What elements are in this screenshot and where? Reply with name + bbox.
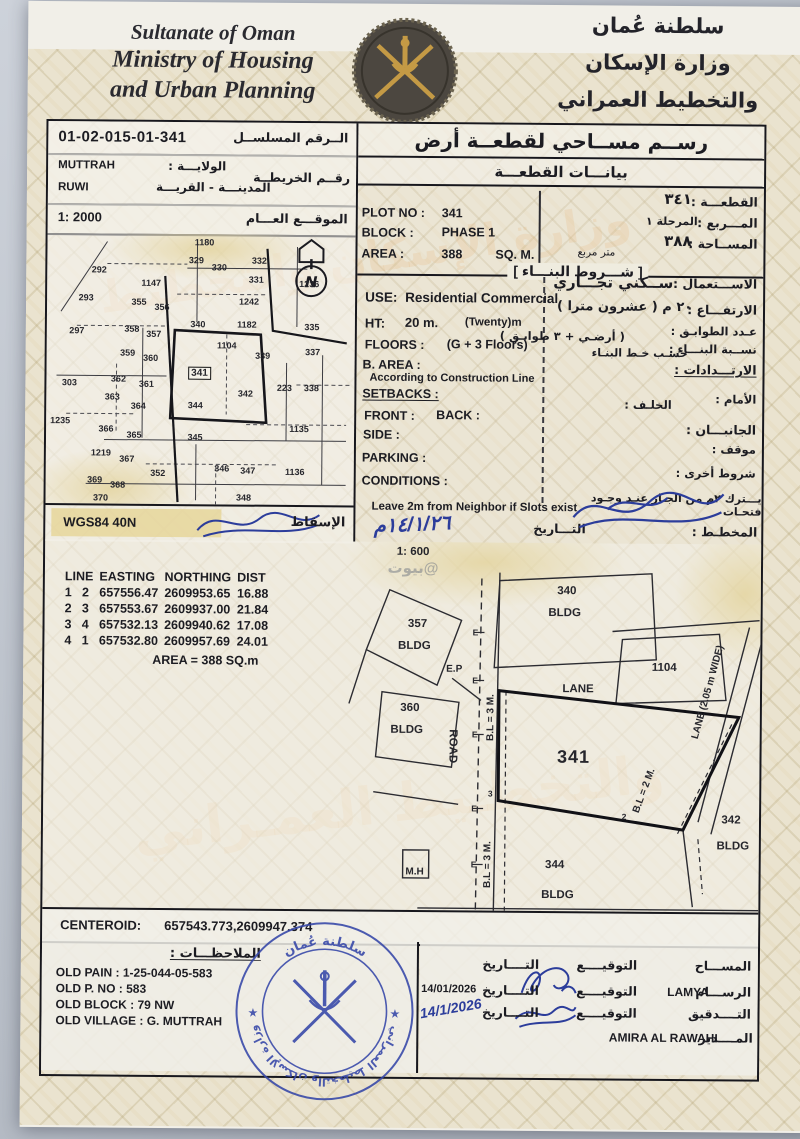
coord-cell: 17.08 — [237, 619, 274, 635]
front-label: FRONT : — [364, 409, 415, 423]
map-plot-1136: 1136 — [285, 467, 305, 477]
plan-label-road: ROAD — [446, 729, 458, 763]
side-label: SIDE : — [363, 428, 400, 442]
note-line-4: OLD VILLAGE : G. MUTTRAH — [55, 1013, 222, 1028]
map-plot-363: 363 — [105, 392, 120, 402]
plan-label-341: 341 — [557, 747, 590, 768]
plan-label-344: 344 — [545, 859, 564, 871]
map-plot-303: 303 — [62, 377, 77, 387]
plan-label-e: E — [471, 803, 477, 813]
plan-label-e: E — [472, 675, 478, 685]
scale-row: 1: 2000 الموقـــع العـــام — [48, 203, 356, 237]
date-label-r3: التــــاريخ — [482, 1004, 539, 1019]
height-label-ar: الارتفـــاع : — [687, 302, 757, 318]
plan-label-357: 357 — [408, 618, 427, 630]
date-printed: 14/01/2026 — [421, 983, 476, 995]
coordinate-table: LINE EASTING NORTHING DIST 12657556.4726… — [64, 569, 274, 668]
ministry-stamp: سلطنة عُمان وزارة الإسكان والتخطيط العمر… — [231, 918, 418, 1105]
plot-ar-label: القطعـــة : — [691, 194, 758, 210]
block-label: BLOCK : — [362, 226, 414, 240]
stamp-emblem-icon — [293, 970, 356, 1042]
plan-label-b-l-3-m-: B.L = 3 M. — [482, 841, 493, 888]
location-map: N 11802921147329330332331123629335535612… — [45, 233, 355, 505]
map-plot-1104: 1104 — [217, 340, 237, 350]
back-label: BACK : — [436, 408, 480, 422]
wilaya-label-ar: الولايـــة : — [168, 159, 226, 173]
area-value: 388 — [441, 247, 462, 261]
col-line: LINE — [65, 569, 100, 585]
map-plot-292: 292 — [92, 264, 107, 274]
document-body: 01-02-015-01-341 الــرقم المسلســل MUTTR… — [39, 119, 766, 1082]
parking-label-ar: موقف : — [712, 442, 756, 456]
map-plot-293: 293 — [79, 292, 94, 302]
map-plot-1147: 1147 — [141, 278, 161, 288]
use-value-ar: ســكني تجـــاري — [553, 273, 673, 292]
signoff-box: المســـاح التوقيــــع التــــاريخ الرســ… — [419, 942, 758, 1076]
header-ar-line3: والتخطيط العمراني — [506, 80, 800, 119]
coord-cell: 3 — [64, 617, 81, 633]
area-ar-label: المســاحة : — [688, 236, 757, 252]
coord-cell: 16.88 — [237, 587, 274, 603]
map-plot-344: 344 — [188, 400, 203, 410]
setbacks-label-ar: الارتـــدادات : — [674, 362, 757, 378]
coord-cell: 657553.67 — [99, 601, 164, 618]
plot-no-value: 341 — [442, 206, 463, 220]
wilaya-row: MUTTRAH RUWI الولايـــة : المدينـــة - ا… — [48, 153, 356, 207]
note-line-2: OLD P. NO : 583 — [56, 981, 147, 996]
plan-label-bldg: BLDG — [390, 724, 423, 736]
map-plot-329: 329 — [189, 255, 204, 265]
date-label-r2: التــــاريخ — [482, 982, 539, 997]
plan-label-بيوت-: بيوت@ — [387, 559, 438, 577]
centeroid-label: CENTEROID: — [60, 917, 141, 933]
map-plot-367: 367 — [119, 454, 134, 464]
setbacks-label: SETBACKS : — [362, 387, 439, 402]
floors-value-ar: ( أرضـي + ٣ طوابـق ) — [500, 329, 625, 344]
back-label-ar: الخلـف : — [624, 398, 672, 412]
svg-text:★: ★ — [389, 1007, 400, 1021]
map-plot-360: 360 — [143, 353, 158, 363]
map-plot-368: 368 — [110, 480, 125, 490]
map-plot-347: 347 — [240, 466, 255, 476]
survey-title-ar: رســم مســاحي لقطعــة أرض — [358, 123, 764, 160]
plan-label-bldg: BLDG — [548, 607, 581, 619]
plot-no-label: PLOT NO : — [362, 206, 425, 220]
note-line-1: OLD PAIN : 1-25-044-05-583 — [56, 965, 213, 980]
map-plot-352: 352 — [150, 468, 165, 478]
plot-plan-1-600: 1: 600357BLDGE.P340BLDG1104LANE360BLDGRO… — [42, 539, 761, 913]
front-label-ar: الأمام : — [715, 392, 756, 406]
manager-name: AMIRA AL RAWAHI — [609, 1030, 718, 1045]
map-plot-346: 346 — [214, 463, 229, 473]
note-line-3: OLD BLOCK : 79 NW — [56, 997, 175, 1012]
col-dist: DIST — [237, 571, 274, 587]
map-scale-value: 1: 2000 — [58, 209, 102, 224]
header-ar-line1: سلطنة عُمان — [506, 7, 800, 46]
use-label-ar: الاســـتعمال : — [673, 276, 757, 292]
height-value: 20 m. — [405, 315, 438, 330]
map-plot-297: 297 — [69, 325, 84, 335]
plot-ar-value: ٣٤١ — [664, 190, 692, 208]
oman-national-emblem-icon — [349, 15, 460, 126]
map-plot-358: 358 — [124, 324, 139, 334]
plan-label-bldg: BLDG — [398, 640, 431, 652]
map-plot-356: 356 — [154, 302, 169, 312]
map-plot-331: 331 — [249, 275, 264, 285]
map-plot-359: 359 — [120, 348, 135, 358]
barea-label: B. AREA : — [363, 358, 421, 372]
map-plot-1236: 1236 — [299, 279, 319, 289]
plan-label-e: E — [472, 729, 478, 739]
map-plot-361: 361 — [139, 379, 154, 389]
map-plot-1182: 1182 — [237, 320, 257, 330]
left-column: 01-02-015-01-341 الــرقم المسلســل MUTTR… — [45, 121, 358, 541]
town-value: RUWI — [58, 181, 89, 193]
header-en-line1: Sultanate of Oman — [70, 19, 356, 46]
right-column: رســم مســاحي لقطعــة أرض بيانـــات القط… — [355, 123, 764, 544]
coord-cell: 2609940.62 — [164, 618, 237, 635]
map-plot-338: 338 — [304, 383, 319, 393]
plot-data-subtitle-ar: بيانـــات القطعـــة — [358, 157, 764, 188]
coord-cell: 2609957.69 — [164, 634, 237, 651]
conditions-label-ar: شروط أخرى : — [676, 466, 756, 481]
use-label: USE: — [365, 290, 397, 305]
scanned-survey-document: وزارة الإسكان والتخطيط والتخطـيط العمـرا… — [20, 1, 800, 1133]
plan-label-e-p: E.P — [446, 664, 462, 675]
floors-label-ar: عـدد الطوابـق : — [671, 324, 757, 339]
coord-cell: 2609937.00 — [164, 602, 237, 619]
block-ar-label: المـــربع : — [697, 215, 758, 230]
coord-row: 23657553.672609937.0021.84 — [65, 601, 275, 619]
plan-label-342: 342 — [721, 814, 740, 826]
plan-label-3: 3 — [488, 789, 493, 799]
height-note: (Twenty)m — [465, 316, 522, 328]
coord-cell: 657532.80 — [99, 633, 164, 650]
map-plot-1135: 1135 — [289, 424, 309, 434]
coord-cell: 2 — [65, 601, 82, 617]
sign-label-r2: التوقيــــع — [576, 983, 637, 998]
plan-label-2: 2 — [622, 812, 627, 822]
location-label-ar: الموقـــع العـــام — [246, 211, 348, 227]
map-plot-339: 339 — [255, 351, 270, 361]
map-plot-335: 335 — [304, 322, 319, 332]
projection-row: WGS84 40N الإسقاط — [45, 503, 353, 543]
area-unit: SQ. M. — [495, 248, 534, 262]
coord-row: 41657532.802609957.6924.01 — [64, 633, 274, 651]
header-ar-line2: وزارة الإسكان — [506, 43, 800, 82]
coord-row: 12657556.472609953.6516.88 — [65, 585, 275, 603]
col-northing: NORTHING — [164, 570, 237, 587]
col-easting: EASTING — [99, 569, 164, 586]
coord-cell: 1 — [65, 585, 82, 601]
coord-row: 34657532.132609940.6217.08 — [64, 617, 274, 635]
coord-cell: 4 — [64, 633, 81, 649]
conditions-divider — [542, 277, 546, 503]
map-plot-332: 332 — [252, 256, 267, 266]
plan-label-bldg: BLDG — [541, 889, 574, 901]
map-plot-1219: 1219 — [91, 447, 111, 457]
barea-value: According to Construction Line — [369, 372, 534, 385]
map-plot-1180: 1180 — [195, 237, 215, 247]
map-plot-341: 341 — [188, 367, 211, 380]
plan-label-lane: LANE — [562, 683, 593, 695]
plan-label-340: 340 — [557, 585, 576, 597]
sign-label-r3: التوقيــــع — [576, 1005, 637, 1020]
check-label-ar: التــــدقيق — [688, 1006, 751, 1021]
map-plot-366: 366 — [99, 423, 114, 433]
barea-value-ar: حسـب خـط البنـاء — [592, 346, 688, 360]
map-plot-1235: 1235 — [50, 415, 70, 425]
computed-area: AREA = 388 SQ.m — [152, 653, 274, 668]
header-en-line2: Ministry of Housing — [70, 44, 356, 76]
area-ar-value: ٣٨٨ — [664, 232, 692, 250]
map-plot-1242: 1242 — [239, 297, 259, 307]
height-value-ar: ٢٠ م ( عشرون مترا ) — [557, 299, 692, 315]
map-plot-362: 362 — [111, 374, 126, 384]
planner-label-ar: المخطـط : — [692, 524, 758, 540]
stamp-top-text: سلطنة عُمان — [281, 934, 370, 961]
plan-label-m-h: M.H — [405, 866, 423, 877]
area-label: AREA : — [361, 247, 404, 261]
map-plot-342: 342 — [238, 389, 253, 399]
serial-label-ar: الــرقم المسلســل — [233, 130, 348, 146]
header-arabic: سلطنة عُمان وزارة الإسكان والتخطيط العمر… — [506, 7, 800, 120]
conditions-label: CONDITIONS : — [362, 474, 448, 489]
surveyor-label-ar: المســـاح — [695, 958, 752, 973]
serial-row: 01-02-015-01-341 الــرقم المسلســل — [48, 121, 356, 157]
map-plot-357: 357 — [146, 329, 161, 339]
coord-cell: 1 — [82, 633, 99, 649]
block-ar-value: المرحلة ١ — [646, 215, 698, 228]
handwritten-date: ١٤/١/٢٦م — [373, 510, 451, 538]
map-plot-223: 223 — [277, 383, 292, 393]
wilaya-value: MUTTRAH — [58, 159, 115, 171]
svg-text:★: ★ — [247, 1006, 258, 1020]
header-en-line3: and Urban Planning — [70, 74, 356, 106]
area-unit-ar: متر مربع — [577, 246, 615, 258]
block-value: PHASE 1 — [442, 225, 496, 239]
plan-label-1-600: 1: 600 — [397, 546, 430, 558]
map-plot-355: 355 — [132, 297, 147, 307]
map-plot-365: 365 — [126, 430, 141, 440]
side-label-ar: الجانبـــان : — [686, 422, 756, 438]
map-plot-337: 337 — [305, 347, 320, 357]
plan-label-b-l-3-m-: B.L = 3 M. — [485, 694, 496, 741]
drafter-name: LAMYA — [667, 985, 709, 999]
coord-cell: 657532.13 — [99, 617, 164, 634]
plan-label-1104: 1104 — [652, 662, 677, 674]
parking-label: PARKING : — [362, 451, 426, 466]
coord-cell: 2 — [82, 585, 99, 601]
wgs-datum: WGS84 40N — [63, 514, 136, 530]
map-plot-364: 364 — [131, 401, 146, 411]
coord-cell: 21.84 — [237, 603, 274, 619]
map-plot-345: 345 — [187, 432, 202, 442]
height-label: HT: — [365, 316, 385, 331]
plan-label-360: 360 — [400, 702, 419, 714]
header-english: Sultanate of Oman Ministry of Housing an… — [70, 19, 357, 106]
plan-label-e: E — [473, 627, 479, 637]
serial-number: 01-02-015-01-341 — [58, 128, 186, 146]
date-handwritten-2: 14/1/2026 — [418, 995, 482, 1021]
coord-cell: 24.01 — [237, 635, 274, 651]
coord-cell: 3 — [82, 601, 99, 617]
coord-cell: 4 — [82, 617, 99, 633]
plan-label-e: E — [471, 859, 477, 869]
coord-cell: 2609953.65 — [164, 586, 237, 603]
map-plot-370: 370 — [93, 492, 108, 502]
plan-label-bldg: BLDG — [716, 840, 749, 852]
projection-label-ar: الإسقاط — [291, 515, 346, 530]
coord-cell: 657556.47 — [99, 585, 164, 602]
svg-text:سلطنة عُمان: سلطنة عُمان — [281, 934, 370, 961]
sign-label-r1: التوقيــــع — [576, 957, 637, 972]
floors-label: FLOORS : — [365, 338, 425, 352]
map-plot-348: 348 — [236, 493, 251, 503]
map-number-label-ar: رقــم الخريطــة — [253, 170, 350, 186]
use-value: Residential Commercial — [405, 290, 558, 306]
map-plot-340: 340 — [190, 319, 205, 329]
plot-data-divider — [538, 191, 541, 265]
map-plot-369: 369 — [87, 474, 102, 484]
map-plot-330: 330 — [212, 262, 227, 272]
